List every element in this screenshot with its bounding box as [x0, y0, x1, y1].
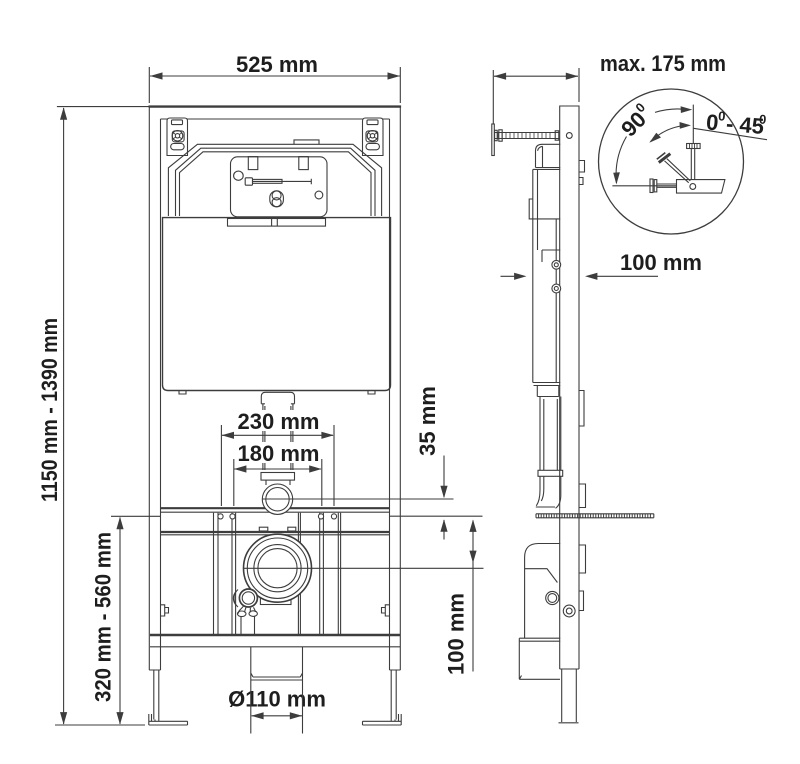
svg-text:Ø110 mm: Ø110 mm	[228, 687, 326, 712]
svg-text:max. 175 mm: max. 175 mm	[600, 51, 726, 76]
svg-text:1150 mm - 1390 mm: 1150 mm - 1390 mm	[37, 318, 62, 502]
svg-text:320 mm - 560 mm: 320 mm - 560 mm	[91, 532, 116, 702]
svg-text:100 mm: 100 mm	[620, 250, 702, 275]
svg-text:100 mm: 100 mm	[444, 593, 469, 675]
svg-text:525 mm: 525 mm	[236, 52, 318, 77]
svg-text:35 mm: 35 mm	[415, 386, 440, 456]
svg-text:180 mm: 180 mm	[238, 441, 320, 466]
svg-text:0: 0	[718, 108, 726, 124]
svg-text:0: 0	[759, 112, 767, 128]
svg-text:230 mm: 230 mm	[238, 409, 320, 434]
